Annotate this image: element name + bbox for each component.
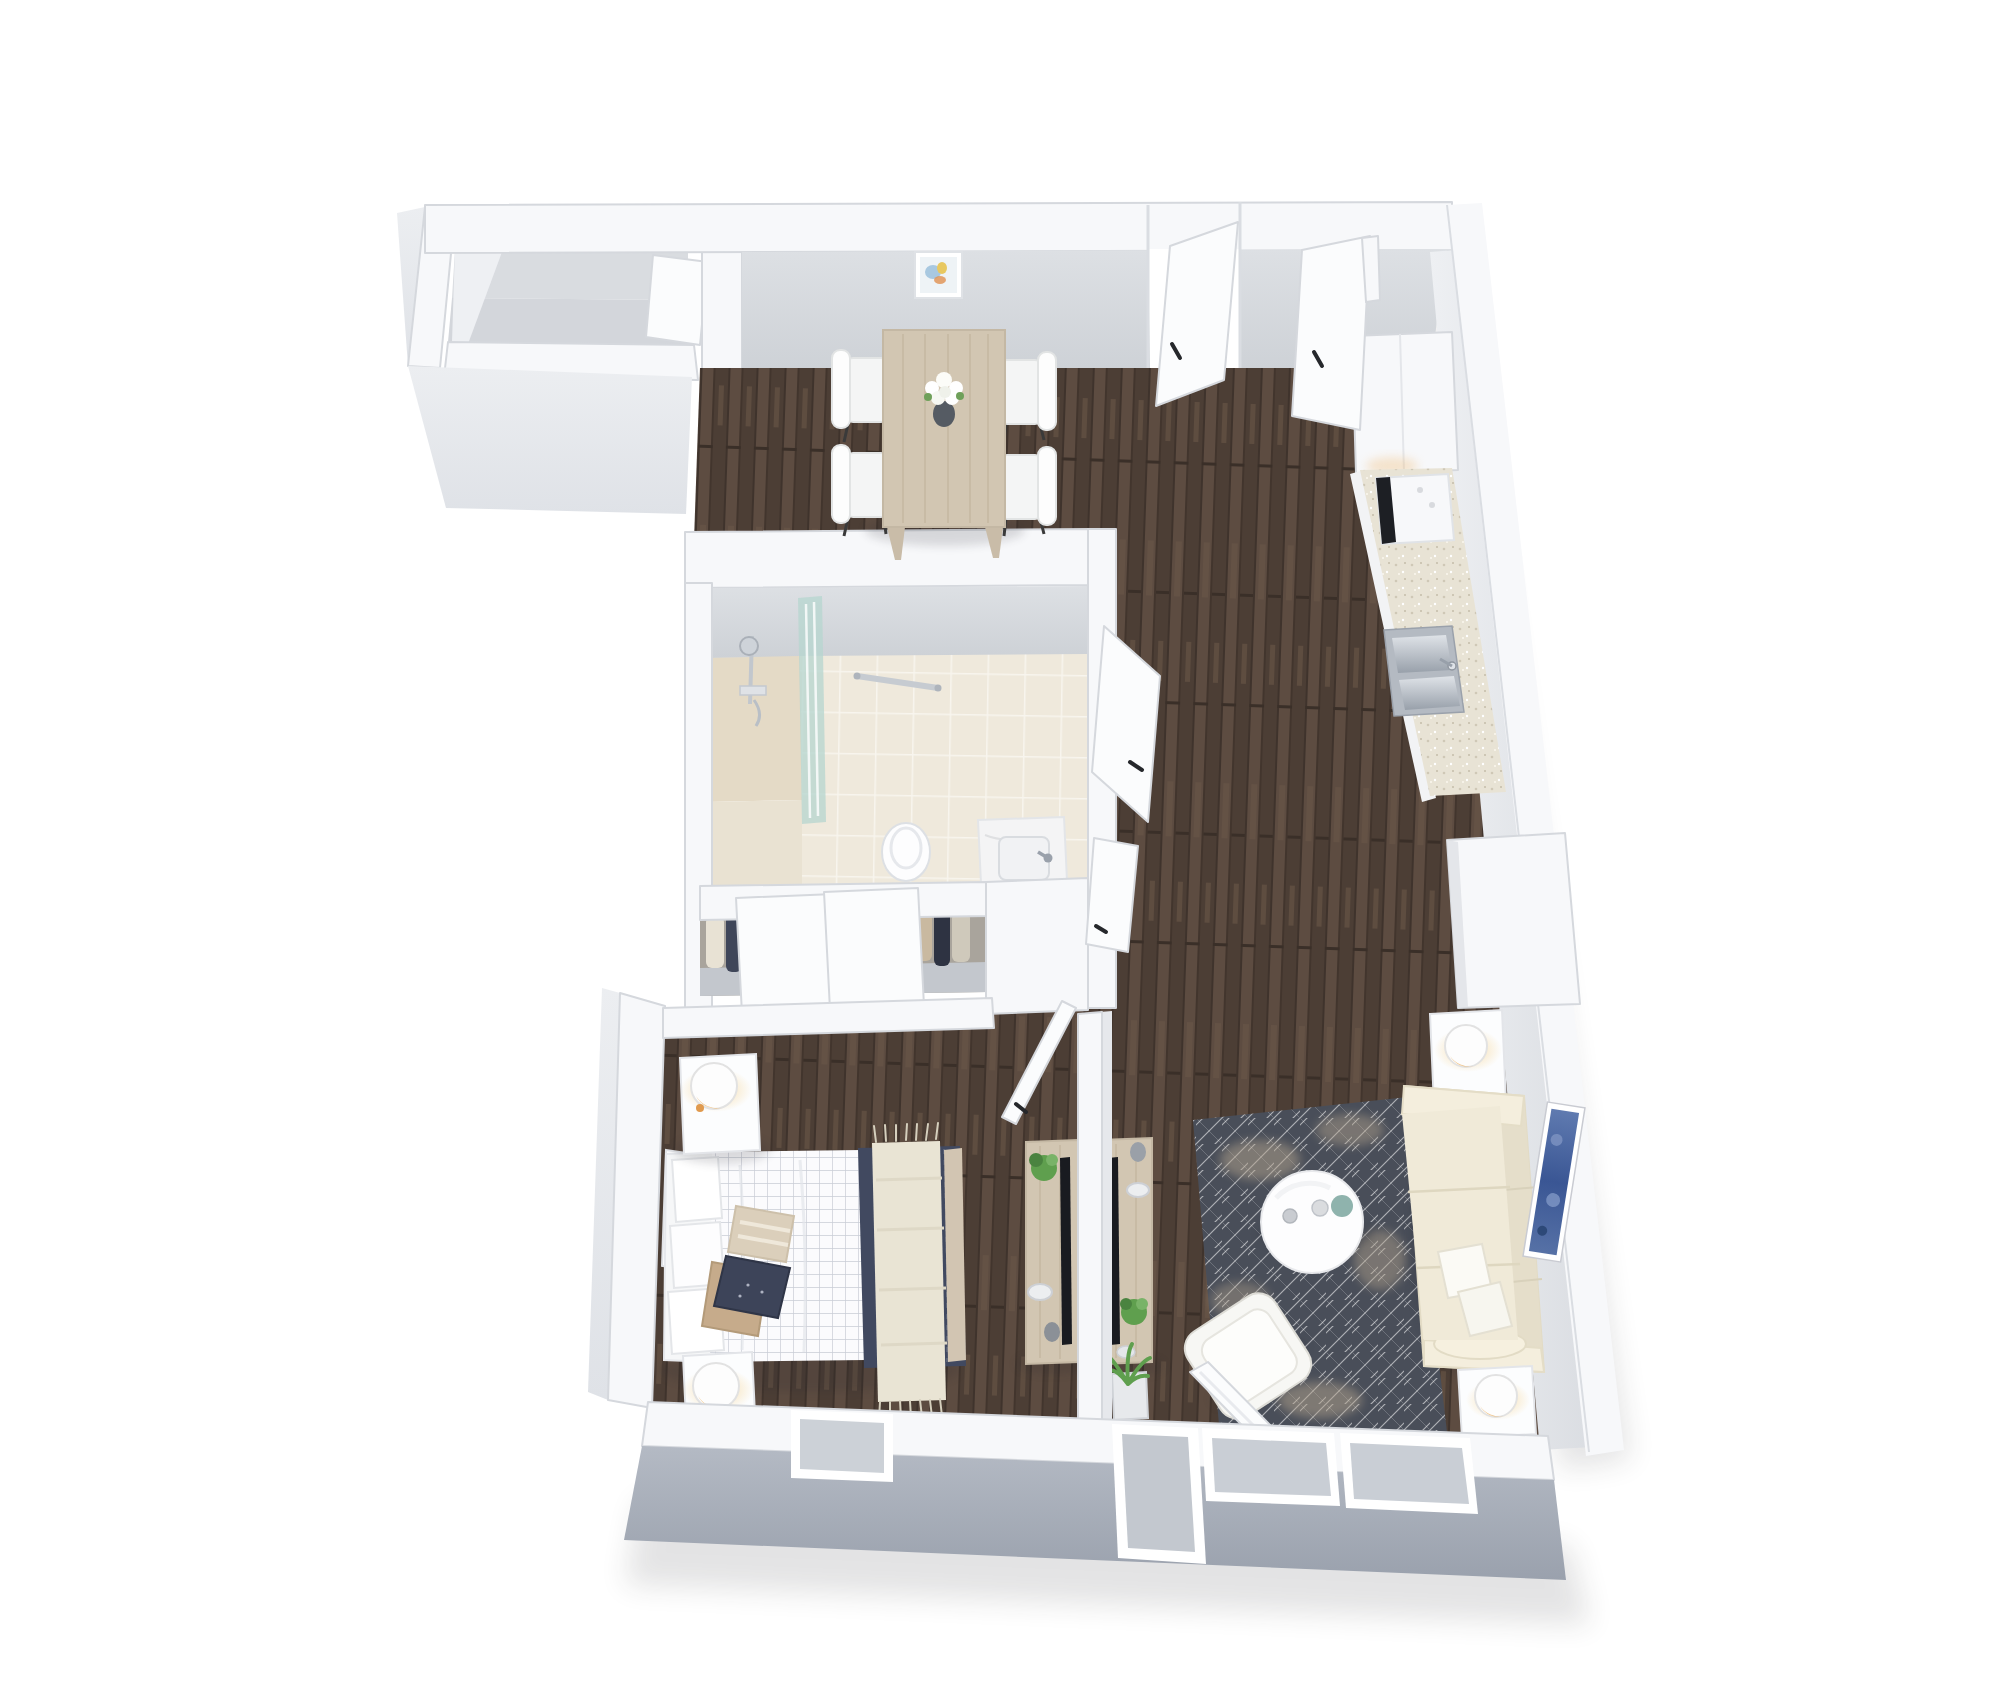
shower-shelf — [740, 686, 766, 695]
cup-decor — [1312, 1200, 1328, 1216]
side-table-bottom — [1458, 1366, 1536, 1438]
sofa — [1402, 1086, 1544, 1372]
deco-item — [696, 1104, 704, 1112]
closet-sliding-door-right — [824, 888, 924, 1010]
balcony-south-exterior-face — [408, 366, 692, 514]
bathroom-north-inner-face — [706, 586, 1088, 658]
table-lamp — [1445, 1025, 1487, 1067]
living-window-a — [1202, 1428, 1340, 1506]
bedroom-window — [791, 1410, 893, 1482]
second-entry-door — [1292, 236, 1370, 430]
closet-side-wall — [986, 878, 1088, 1014]
dining-table — [883, 330, 1005, 560]
tall-cabinet — [1352, 332, 1458, 474]
divider-wall-top — [1078, 1012, 1102, 1424]
vase-decor — [1130, 1142, 1146, 1162]
door-jamb-panel — [1362, 236, 1380, 302]
shower-head-icon — [740, 637, 758, 655]
tv-bedroom — [1060, 1157, 1072, 1345]
sink-basin — [999, 837, 1049, 880]
floor-plan-render — [0, 0, 2000, 1700]
plate-decor — [1028, 1284, 1052, 1300]
double-sink — [1384, 626, 1464, 716]
window-glass — [800, 1419, 884, 1473]
divider-wall — [1078, 1011, 1112, 1424]
window-glass — [1350, 1443, 1469, 1504]
wall-jog — [1447, 833, 1580, 1008]
linen-door — [1086, 838, 1138, 952]
table-lamp — [693, 1363, 739, 1409]
table-lamp — [1475, 1375, 1517, 1417]
teal-dish-decor — [1331, 1195, 1353, 1217]
pillow-beige-striped — [728, 1206, 794, 1262]
nightstand-top — [674, 1054, 770, 1164]
pillow-navy — [714, 1256, 790, 1318]
closet — [700, 878, 1088, 1014]
window-glass — [1212, 1438, 1331, 1496]
range — [1376, 474, 1454, 544]
table-lamp — [691, 1063, 737, 1109]
floor-plan-svg — [0, 0, 2000, 1700]
shower-floor — [706, 656, 802, 802]
north-wall-top — [425, 202, 1452, 253]
living-window-b — [1340, 1433, 1478, 1514]
dining-west-wall-stub — [702, 248, 742, 388]
vase-decor — [1044, 1322, 1060, 1342]
framed-wall-picture — [915, 252, 962, 298]
plate-decor — [1127, 1183, 1149, 1197]
shower-glass-screen — [798, 596, 826, 824]
cup-decor — [1283, 1209, 1297, 1223]
door-glass — [1122, 1434, 1195, 1552]
balcony-door — [646, 255, 708, 345]
patio-door-frame — [1112, 1424, 1206, 1564]
toilet — [882, 823, 930, 881]
pillow-white — [672, 1157, 722, 1222]
